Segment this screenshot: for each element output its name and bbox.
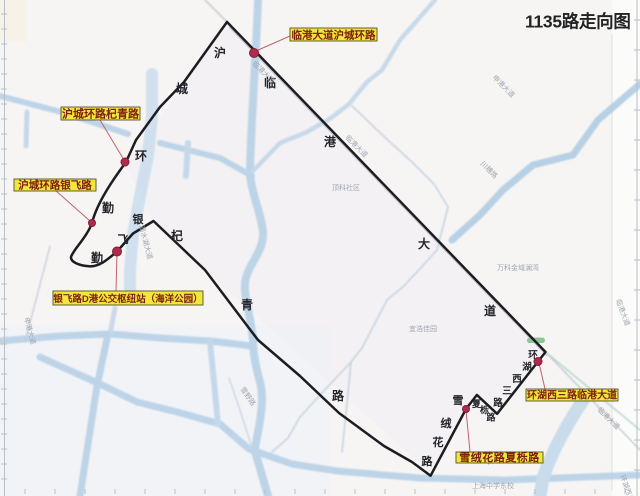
svg-text:飞: 飞 (118, 233, 129, 246)
svg-text:上海中学东校: 上海中学东校 (472, 481, 514, 490)
svg-text:道: 道 (484, 303, 496, 318)
svg-text:港: 港 (324, 134, 337, 149)
svg-text:城: 城 (176, 81, 188, 96)
svg-text:勤: 勤 (102, 200, 114, 215)
svg-text:1135路走向图: 1135路走向图 (525, 12, 631, 32)
svg-text:雪: 雪 (453, 394, 464, 407)
svg-text:万科金域澜湾: 万科金域澜湾 (497, 263, 539, 272)
svg-text:三: 三 (502, 386, 512, 397)
svg-text:青: 青 (241, 297, 253, 312)
svg-text:临港大道沪城环路: 临港大道沪城环路 (292, 29, 376, 42)
svg-text:花: 花 (433, 435, 444, 449)
svg-text:勤: 勤 (91, 250, 103, 265)
svg-text:银飞路D港公交枢纽站（海洋公园）: 银飞路D港公交枢纽站（海洋公园） (53, 293, 202, 305)
svg-text:沪: 沪 (214, 45, 226, 60)
svg-text:环: 环 (528, 350, 538, 361)
svg-text:路: 路 (422, 454, 434, 468)
svg-text:杞: 杞 (171, 228, 183, 243)
svg-text:沪城环路杞青路: 沪城环路杞青路 (62, 107, 140, 121)
svg-text:雪绒花路夏栎路: 雪绒花路夏栎路 (459, 450, 540, 464)
svg-text:湖: 湖 (522, 361, 532, 373)
svg-text:绒: 绒 (441, 416, 452, 430)
svg-text:路: 路 (486, 412, 496, 423)
svg-text:宜浩佳园: 宜浩佳园 (409, 324, 437, 333)
svg-text:银: 银 (133, 212, 145, 226)
svg-text:路: 路 (332, 388, 345, 403)
svg-text:顶科社区: 顶科社区 (332, 183, 360, 192)
svg-text:西: 西 (512, 374, 522, 385)
svg-text:沪城环路银飞路: 沪城环路银飞路 (18, 179, 92, 192)
svg-text:环湖西三路临港大道: 环湖西三路临港大道 (527, 389, 617, 402)
svg-text:环: 环 (135, 149, 147, 163)
svg-text:大: 大 (418, 236, 430, 251)
svg-text:路: 路 (493, 397, 503, 409)
